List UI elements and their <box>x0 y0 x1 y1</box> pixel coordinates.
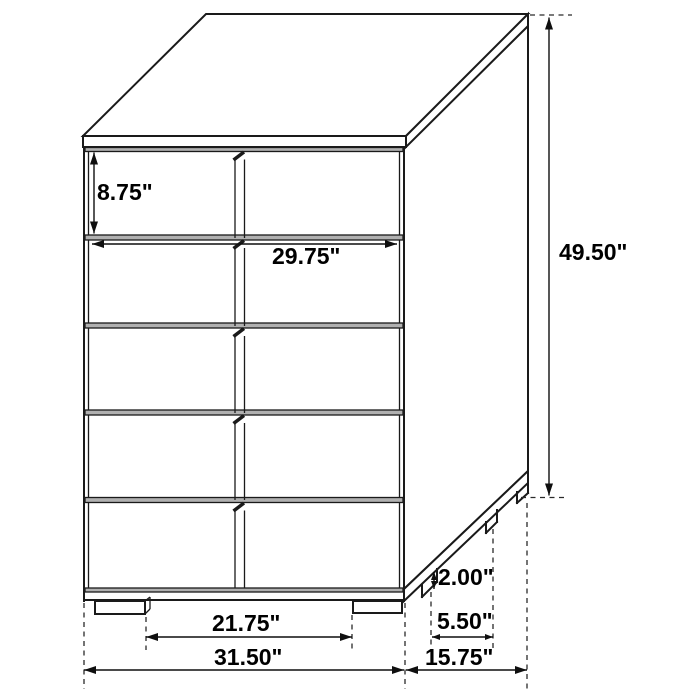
top-reveal-groove <box>85 148 403 152</box>
dimension-overall-depth: 15.75" <box>406 644 527 670</box>
front-right-leg <box>353 601 402 613</box>
dimension-overall-width: 31.50" <box>84 644 404 670</box>
dimension-label-overall-width: 31.50" <box>214 644 282 670</box>
dimension-label-overall-height: 49.50" <box>559 239 627 265</box>
dimension-leg-spacing: 21.75" <box>146 610 352 637</box>
dimension-label-leg-height: 2.00" <box>438 564 494 590</box>
front-left-leg <box>95 601 145 614</box>
top-panel-front-edge <box>83 136 406 147</box>
dimension-label-leg-depth: 5.50" <box>437 608 493 634</box>
dimension-leg-depth: 5.50" <box>432 608 493 637</box>
dimension-overall-height: 49.50" <box>549 18 627 496</box>
bottom-reveal-groove <box>85 588 403 592</box>
dimension-label-drawer-height: 8.75" <box>97 179 153 205</box>
chest-body <box>83 14 528 614</box>
dimension-leg-height: 2.00" <box>434 564 494 590</box>
dimension-label-leg-spacing: 21.75" <box>212 610 280 636</box>
dimension-label-interior-width: 29.75" <box>272 243 340 269</box>
dimension-label-overall-depth: 15.75" <box>425 644 493 670</box>
dimension-diagram: 8.75" 29.75" 49.50" 2.00" 5.50" 21.75" 3… <box>0 0 700 700</box>
chest-dimension-drawing: 8.75" 29.75" 49.50" 2.00" 5.50" 21.75" 3… <box>0 0 700 700</box>
